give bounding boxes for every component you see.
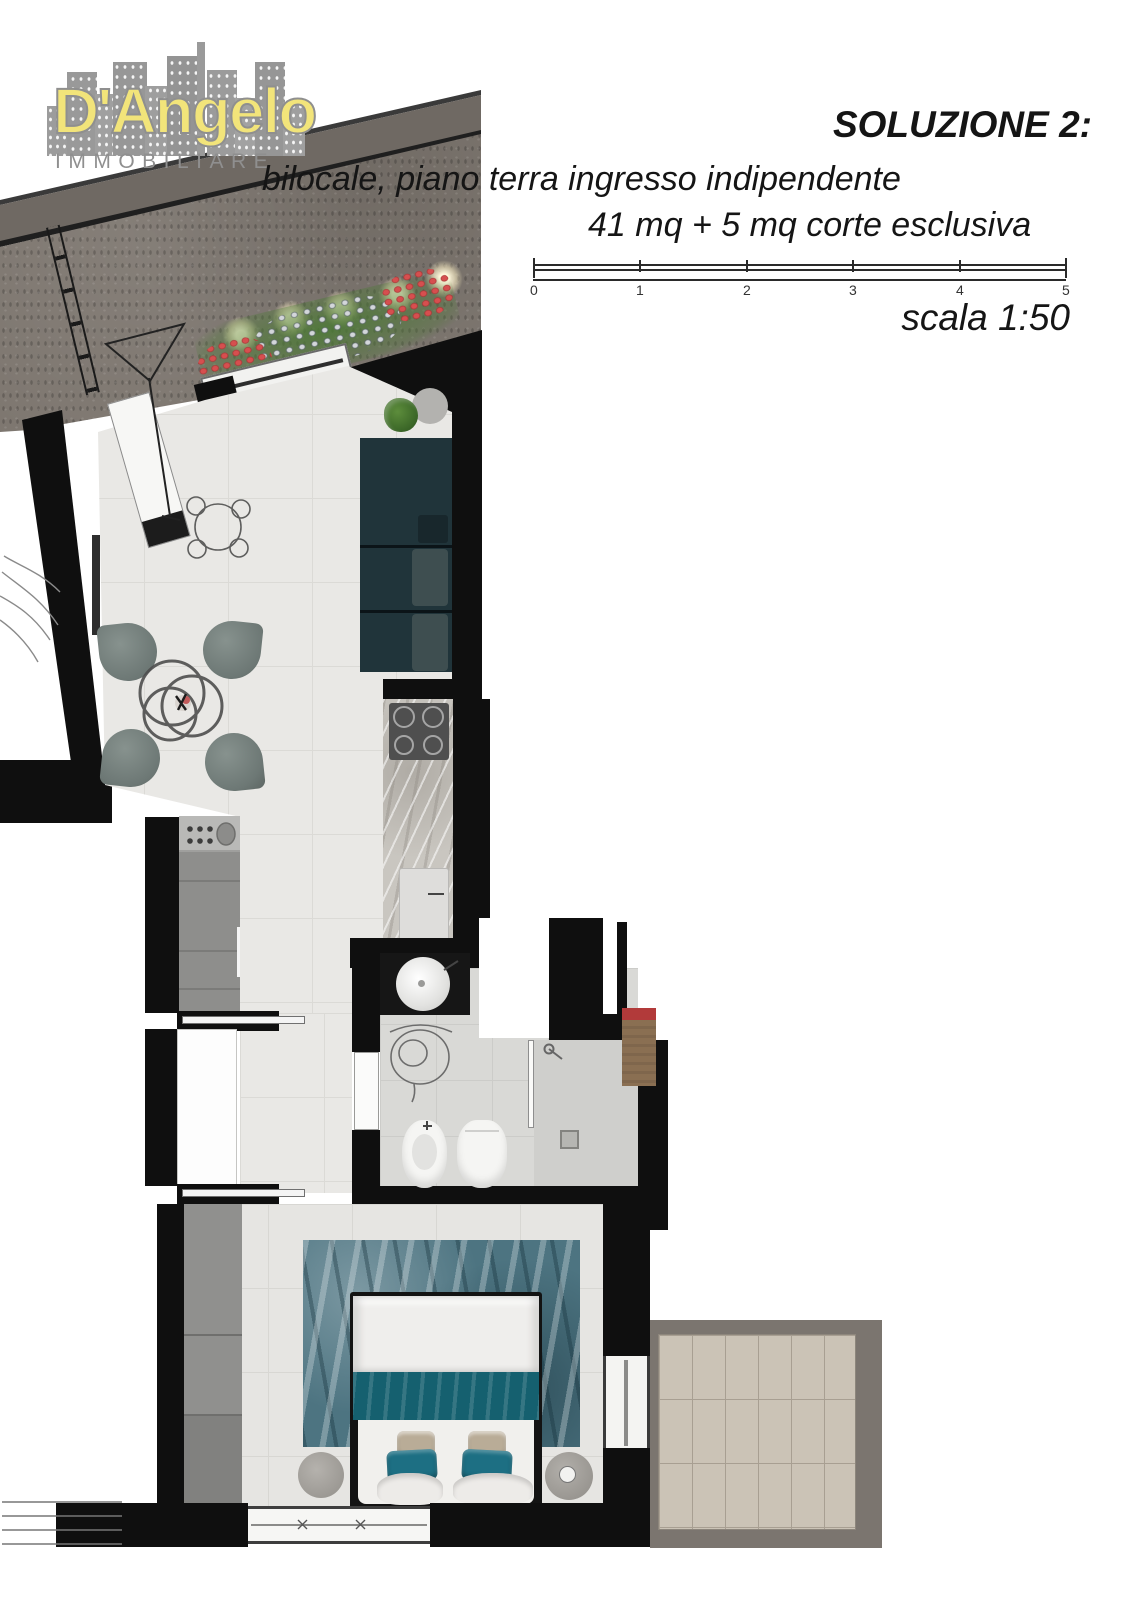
sliding-door-handle <box>182 1189 305 1197</box>
wall-closet-left <box>145 1029 177 1186</box>
towel-red <box>622 1008 656 1020</box>
wardrobe <box>184 1204 242 1508</box>
wall-bottom-right <box>430 1503 655 1547</box>
scalebar-tick <box>533 258 535 278</box>
plan-subtitle-2: 41 mq + 5 mq corte esclusiva <box>588 206 1031 245</box>
sofa-seam <box>360 545 452 548</box>
sofa-pillow <box>418 515 448 543</box>
bed <box>350 1292 542 1510</box>
wall-bath-right-upper <box>549 918 603 1040</box>
wall-right-upper <box>451 400 482 699</box>
wardrobe-lower <box>184 1416 242 1508</box>
bidet-bowl <box>412 1134 437 1170</box>
logo-tagline: IMMOBILIARE <box>55 150 275 174</box>
scalebar-tick <box>959 260 961 272</box>
washbasin-drain <box>418 980 425 987</box>
cabinet-joint <box>179 950 240 952</box>
scalebar-tick <box>639 260 641 272</box>
closet-niche <box>177 1029 237 1186</box>
bed-sheet-fold <box>453 1473 533 1505</box>
scalebar-tick-label: 1 <box>636 282 644 298</box>
bathroom-door-glass <box>354 1052 379 1130</box>
bidet <box>402 1120 447 1188</box>
floorplan-page: D'Angelo IMMOBILIARE SOLUZIONE 2: biloca… <box>0 0 1130 1600</box>
cabinet-joint <box>179 880 240 882</box>
scalebar-tick-label: 5 <box>1062 282 1070 298</box>
plan-title: SOLUZIONE 2: <box>833 104 1092 146</box>
kitchen-cabinet-run <box>179 852 240 1013</box>
toilet <box>457 1120 507 1188</box>
bedroom-window-rail <box>251 1524 427 1526</box>
cooktop <box>389 703 449 760</box>
wardrobe-joint <box>184 1334 242 1336</box>
terrace-door <box>603 1356 650 1450</box>
scalebar: 012345 <box>533 256 1066 300</box>
terrace-door-rail <box>624 1360 628 1446</box>
bed-sheet-fold <box>377 1473 443 1505</box>
wall-right-lower <box>453 699 490 940</box>
wall-bath-door-side <box>352 1130 380 1190</box>
sofa-seam <box>360 610 452 613</box>
shower-drain <box>560 1130 579 1149</box>
potted-plant <box>384 398 418 432</box>
plan-subtitle-1: bilocale, piano terra ingresso indipende… <box>262 160 901 199</box>
scalebar-tick <box>1065 258 1067 278</box>
wall-bedroom-right <box>603 1226 650 1358</box>
scalebar-tick-label: 4 <box>956 282 964 298</box>
toilet-lid-line <box>465 1130 499 1132</box>
nightstand <box>298 1452 344 1498</box>
kitchen-sink <box>399 868 449 942</box>
cabinet-joint <box>179 988 240 990</box>
terrace-floor <box>658 1334 856 1530</box>
wall-left-stub <box>0 760 112 823</box>
sofa-cushion <box>412 549 448 606</box>
scalebar-tick <box>852 260 854 272</box>
scalebar-tick-label: 3 <box>849 282 857 298</box>
sofa <box>360 438 452 672</box>
scalebar-bar <box>533 264 1066 281</box>
scalebar-tick <box>746 260 748 272</box>
kitchen-sink-unit <box>179 816 240 852</box>
sofa-cushion <box>412 614 448 671</box>
shower-glass <box>528 1040 534 1128</box>
radiator <box>92 535 100 635</box>
nightstand-decor <box>559 1466 576 1483</box>
nightstand <box>545 1452 593 1500</box>
door-leaf <box>617 922 627 1018</box>
wall-bedroom-left <box>157 1204 184 1505</box>
scale-label: scala 1:50 <box>901 297 1070 339</box>
cabinet-handle <box>237 927 240 977</box>
wall-bottom-left <box>56 1503 248 1547</box>
scalebar-tick-label: 0 <box>530 282 538 298</box>
bedroom-window <box>248 1506 430 1544</box>
logo-name: D'Angelo <box>53 74 315 148</box>
scalebar-tick-label: 2 <box>743 282 751 298</box>
bed-duvet <box>353 1296 539 1372</box>
corridor-floor <box>240 1013 352 1193</box>
wall-kitchen-left <box>145 817 179 1013</box>
bed-throw <box>353 1372 539 1420</box>
sliding-door-handle <box>182 1016 305 1024</box>
wall-bath-door-side <box>352 966 380 1052</box>
exterior-notch <box>479 918 549 1038</box>
